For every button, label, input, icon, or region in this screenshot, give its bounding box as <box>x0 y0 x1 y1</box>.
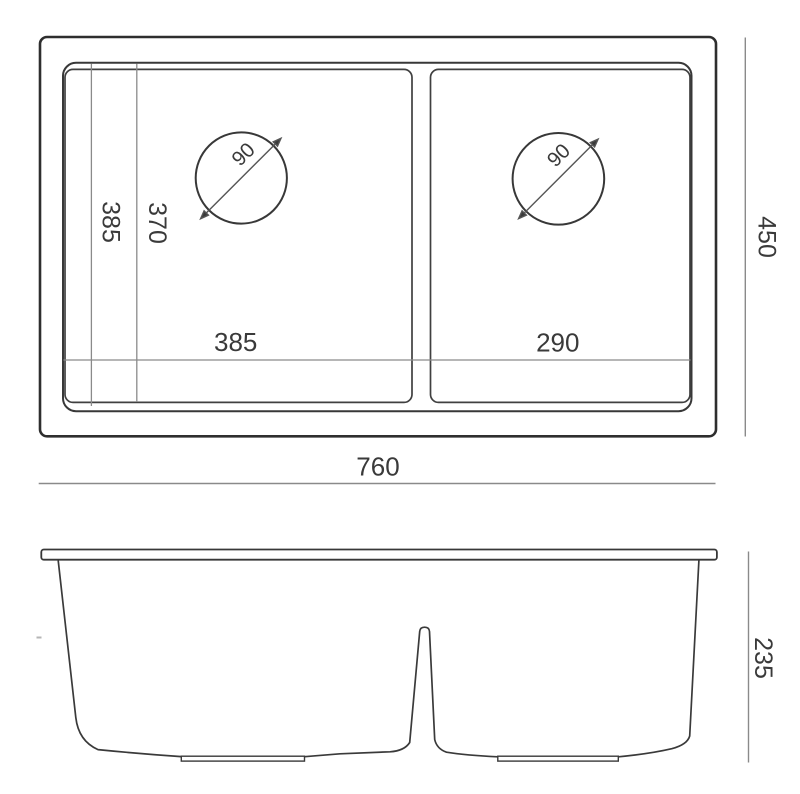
svg-text:760: 760 <box>356 452 399 482</box>
svg-text:370: 370 <box>143 202 171 244</box>
svg-text:385: 385 <box>214 327 257 357</box>
svg-text:290: 290 <box>536 328 579 358</box>
svg-text:450: 450 <box>753 216 781 258</box>
svg-text:235: 235 <box>749 637 777 679</box>
svg-text:385: 385 <box>97 201 125 243</box>
